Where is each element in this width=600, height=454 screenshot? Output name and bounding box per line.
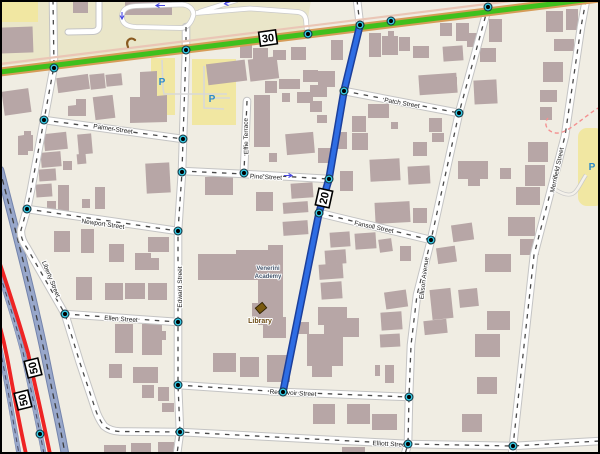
svg-text:Venerini: Venerini <box>256 266 280 272</box>
svg-text:P: P <box>159 77 166 88</box>
svg-text:P: P <box>589 162 596 173</box>
svg-text:20: 20 <box>318 191 332 206</box>
svg-text:P: P <box>209 94 216 105</box>
svg-text:Edward Street: Edward Street <box>177 266 184 307</box>
svg-text:Effie Terrace: Effie Terrace <box>243 117 251 154</box>
svg-text:Pine Street: Pine Street <box>250 173 283 181</box>
svg-text:Academy: Academy <box>255 274 282 280</box>
svg-text:30: 30 <box>261 32 275 46</box>
svg-text:Library: Library <box>248 318 272 325</box>
